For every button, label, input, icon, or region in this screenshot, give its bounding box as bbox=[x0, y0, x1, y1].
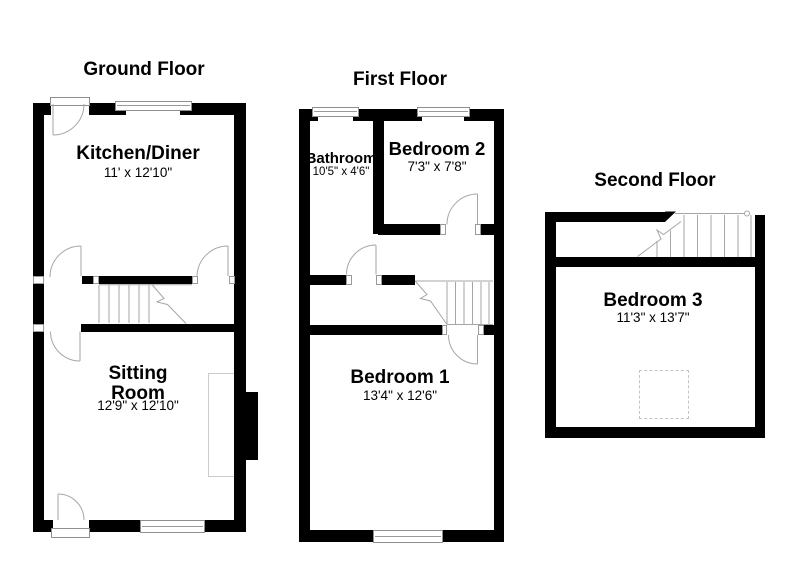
door-swing-bathroom bbox=[347, 245, 377, 275]
room-dims-sitting: 12'9" x 12'10" bbox=[38, 399, 238, 413]
wall bbox=[484, 325, 494, 335]
door-jamb bbox=[33, 276, 44, 284]
room-label-bedroom3: Bedroom 3 bbox=[553, 291, 753, 311]
room-dims-kitchen: 11' x 12'10" bbox=[38, 166, 238, 180]
door-jamb bbox=[440, 224, 446, 235]
window bbox=[312, 107, 359, 118]
wall bbox=[89, 520, 141, 532]
wall bbox=[545, 212, 665, 223]
door-jamb bbox=[475, 224, 482, 235]
window bbox=[417, 107, 471, 118]
wall-taper bbox=[665, 212, 676, 223]
room-label-kitchen: Kitchen/Diner bbox=[38, 144, 238, 164]
door-swing-kitchen-left bbox=[50, 246, 81, 277]
wall bbox=[481, 224, 494, 235]
room-label-bedroom2: Bedroom 2 bbox=[377, 139, 497, 158]
room-label-bedroom1: Bedroom 1 bbox=[300, 368, 500, 388]
staircase-ground bbox=[99, 285, 192, 324]
wall bbox=[82, 276, 93, 284]
room-label-bathroom: Bathroom bbox=[291, 151, 391, 167]
door-jamb bbox=[93, 276, 99, 284]
wall bbox=[353, 109, 422, 121]
wall bbox=[33, 520, 53, 532]
wall bbox=[99, 276, 192, 284]
floor-title-ground: Ground Floor bbox=[44, 60, 244, 80]
wall bbox=[310, 325, 442, 335]
wall bbox=[33, 103, 51, 115]
wall bbox=[755, 215, 766, 438]
room-dims-bedroom3: 11'3" x 13'7" bbox=[553, 311, 753, 325]
rooflight bbox=[639, 370, 689, 419]
door-swing-kitchen-right bbox=[197, 246, 228, 277]
wall bbox=[299, 530, 379, 542]
floor-title-second: Second Floor bbox=[555, 171, 755, 191]
wall bbox=[382, 275, 416, 286]
door-jamb bbox=[376, 275, 382, 286]
sitting-room-recess bbox=[208, 373, 237, 477]
door-swing-sitting bbox=[51, 332, 81, 362]
entry-door-frame bbox=[50, 97, 90, 106]
wall bbox=[545, 427, 765, 438]
door-swing-front bbox=[58, 494, 84, 520]
floor-title-first: First Floor bbox=[300, 70, 500, 90]
door-jamb bbox=[346, 275, 352, 286]
door-swing-entry bbox=[53, 104, 84, 135]
room-dims-bedroom2: 7'3" x 7'8" bbox=[377, 160, 497, 174]
door-jamb bbox=[229, 276, 235, 284]
door-jamb bbox=[33, 324, 44, 332]
door-swing-bedroom1 bbox=[449, 335, 478, 364]
door-swing-bedroom2 bbox=[447, 194, 478, 225]
wall bbox=[205, 520, 246, 532]
staircase-first bbox=[415, 281, 493, 325]
front-door-frame bbox=[51, 528, 90, 538]
wall bbox=[81, 324, 235, 332]
door-jamb bbox=[478, 325, 484, 335]
wall bbox=[464, 109, 504, 121]
floorplan-canvas: Ground Floor Kitchen/Diner 11' x 12'10" … bbox=[0, 0, 800, 582]
wall bbox=[378, 224, 440, 235]
room-dims-bedroom1: 13'4" x 12'6" bbox=[300, 389, 500, 403]
door-jamb bbox=[442, 325, 448, 335]
window bbox=[115, 101, 192, 111]
window bbox=[373, 530, 443, 543]
door-jamb bbox=[192, 276, 198, 284]
room-dims-bathroom: 10'5" x 4'6" bbox=[291, 166, 391, 178]
wall bbox=[310, 275, 347, 286]
wall bbox=[545, 257, 765, 267]
window bbox=[140, 520, 206, 533]
wall bbox=[494, 109, 505, 542]
wall bbox=[437, 530, 504, 542]
